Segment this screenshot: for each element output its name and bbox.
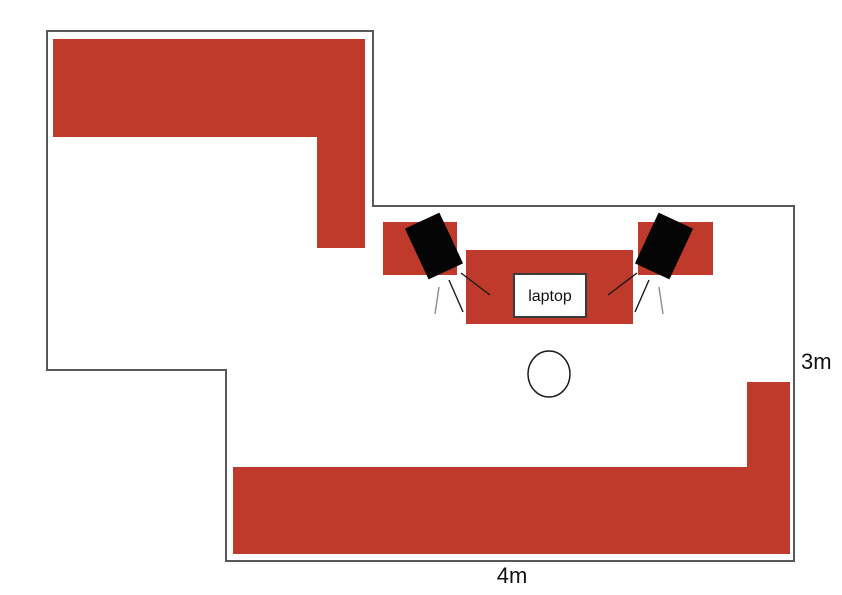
room-height-label: 3m: [801, 349, 832, 374]
right-speaker-line-middle: [635, 280, 649, 312]
laptop-label: laptop: [528, 288, 572, 305]
left-speaker-line-middle: [449, 280, 463, 312]
desk-bottom-right: [233, 382, 790, 554]
floor-plan: laptop 3m 4m: [0, 0, 842, 595]
right-speaker-line-outer: [659, 287, 663, 314]
desk-top-left: [53, 39, 365, 248]
room-width-label: 4m: [497, 563, 528, 588]
left-speaker-line-outer: [435, 287, 439, 314]
floor-plan-svg: laptop 3m 4m: [0, 0, 842, 595]
listener-circle: [528, 351, 570, 397]
